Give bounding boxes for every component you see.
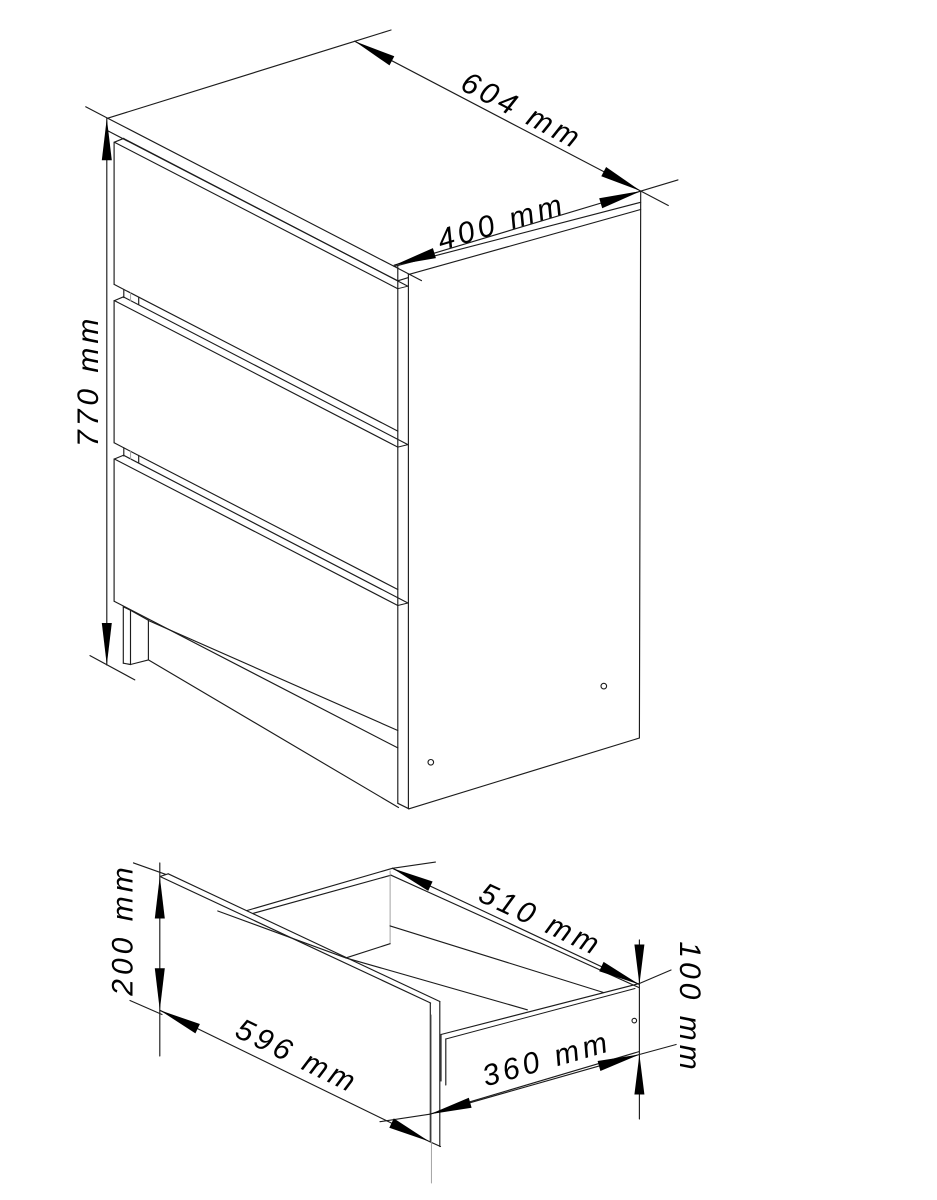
svg-text:770 mm: 770 mm: [72, 315, 105, 447]
svg-text:100 mm: 100 mm: [673, 941, 706, 1073]
svg-text:200 mm: 200 mm: [107, 863, 140, 996]
